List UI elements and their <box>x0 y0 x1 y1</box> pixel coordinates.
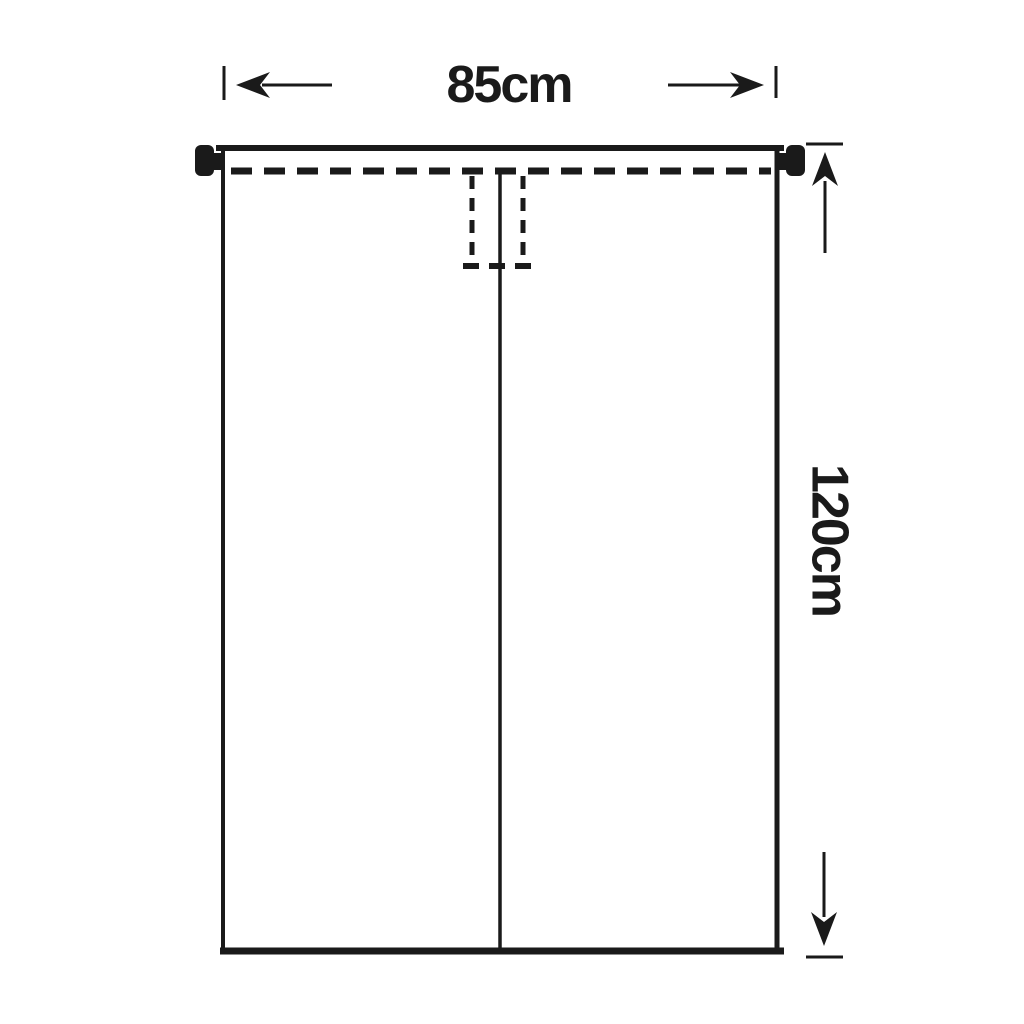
height-dimension-label: 120cm <box>800 464 858 616</box>
arrow-down-icon <box>811 852 837 946</box>
height-dimension: 120cm <box>800 144 858 957</box>
diagram-svg: 85cm <box>0 0 1024 1024</box>
width-dimension: 85cm <box>224 56 776 114</box>
hanging-loop-dashed-outline <box>463 176 533 268</box>
curtain-body <box>220 148 784 953</box>
arrow-left-icon <box>236 72 332 98</box>
arrow-right-icon <box>668 72 764 98</box>
arrow-up-icon <box>812 152 838 253</box>
width-dimension-label: 85cm <box>447 56 572 114</box>
curtain-dimension-diagram: 85cm <box>0 0 1024 1024</box>
